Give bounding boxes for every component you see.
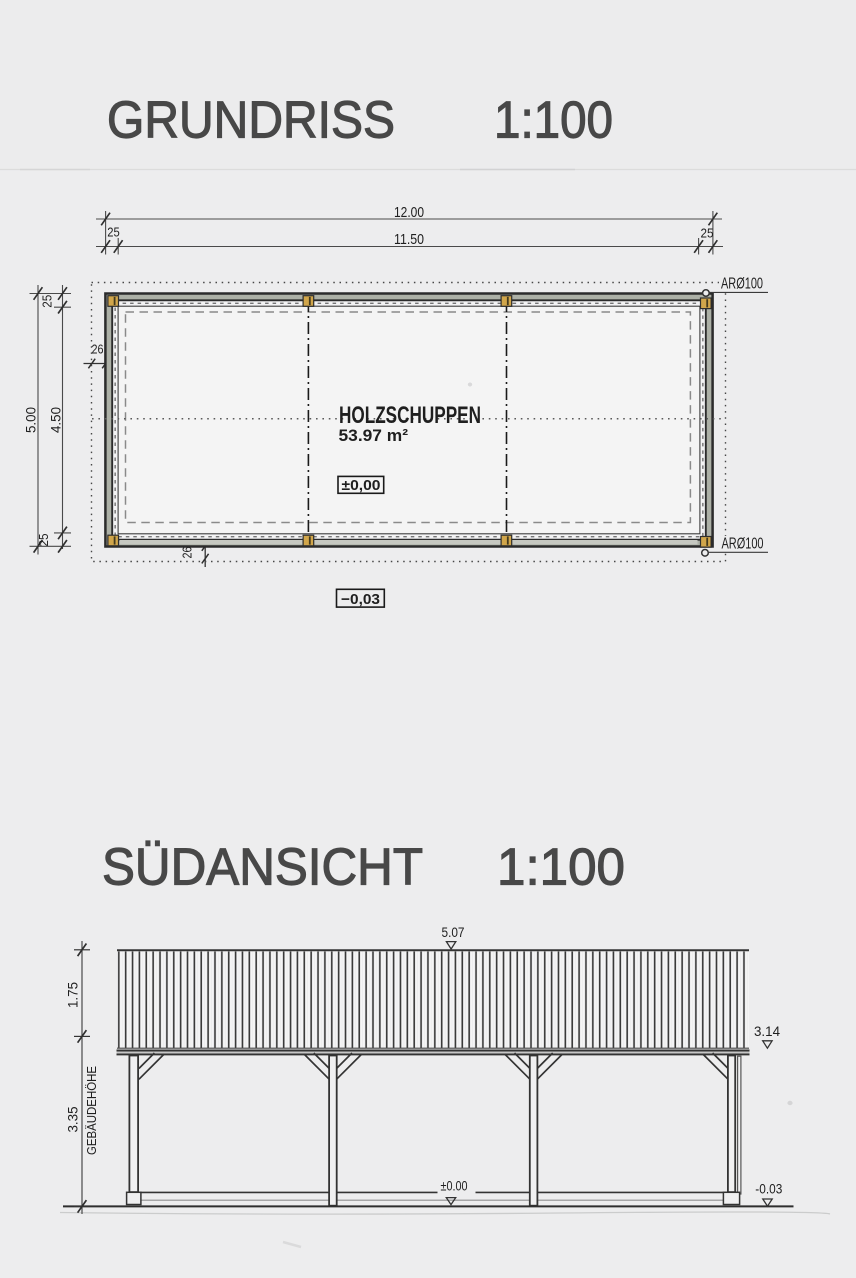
- svg-text:25: 25: [40, 295, 54, 308]
- svg-text:−0,03: −0,03: [341, 591, 380, 608]
- svg-text:26: 26: [92, 343, 104, 357]
- svg-text:12.00: 12.00: [394, 204, 424, 221]
- svg-text:53.97 m²: 53.97 m²: [339, 427, 409, 445]
- svg-text:1:100: 1:100: [497, 839, 625, 897]
- svg-text:1.75: 1.75: [66, 982, 81, 1008]
- svg-text:ARØ100: ARØ100: [722, 535, 764, 552]
- svg-text:26: 26: [181, 546, 195, 558]
- svg-text:GEBÄUDEHÖHE: GEBÄUDEHÖHE: [85, 1066, 99, 1155]
- svg-text:SÜDANSICHT: SÜDANSICHT: [102, 839, 423, 897]
- svg-text:5.00: 5.00: [23, 407, 39, 433]
- svg-text:ARØ100: ARØ100: [721, 276, 763, 293]
- svg-text:±0.00: ±0.00: [441, 1179, 468, 1194]
- svg-text:3.35: 3.35: [66, 1107, 81, 1133]
- svg-text:11.50: 11.50: [394, 231, 424, 248]
- svg-text:1:100: 1:100: [494, 92, 613, 150]
- svg-text:-0.03: -0.03: [755, 1182, 782, 1197]
- svg-text:HOLZSCHUPPEN: HOLZSCHUPPEN: [339, 402, 481, 429]
- svg-text:GRUNDRISS: GRUNDRISS: [107, 92, 395, 150]
- svg-text:4.50: 4.50: [48, 407, 64, 433]
- svg-text:25: 25: [107, 226, 120, 240]
- svg-text:25: 25: [37, 533, 51, 546]
- svg-text:3.14: 3.14: [754, 1023, 780, 1039]
- svg-text:5.07: 5.07: [442, 924, 465, 940]
- svg-text:±0,00: ±0,00: [342, 477, 381, 494]
- svg-text:25: 25: [701, 227, 714, 241]
